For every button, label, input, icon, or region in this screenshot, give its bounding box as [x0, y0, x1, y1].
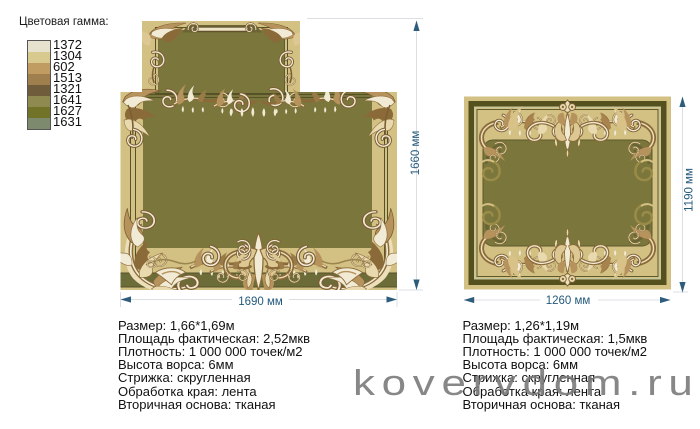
svg-text:1190 мм: 1190 мм — [684, 168, 696, 212]
svg-text:1690 мм: 1690 мм — [238, 296, 283, 308]
svg-text:1260 мм: 1260 мм — [546, 295, 591, 307]
svg-text:1660 мм: 1660 мм — [410, 131, 422, 176]
